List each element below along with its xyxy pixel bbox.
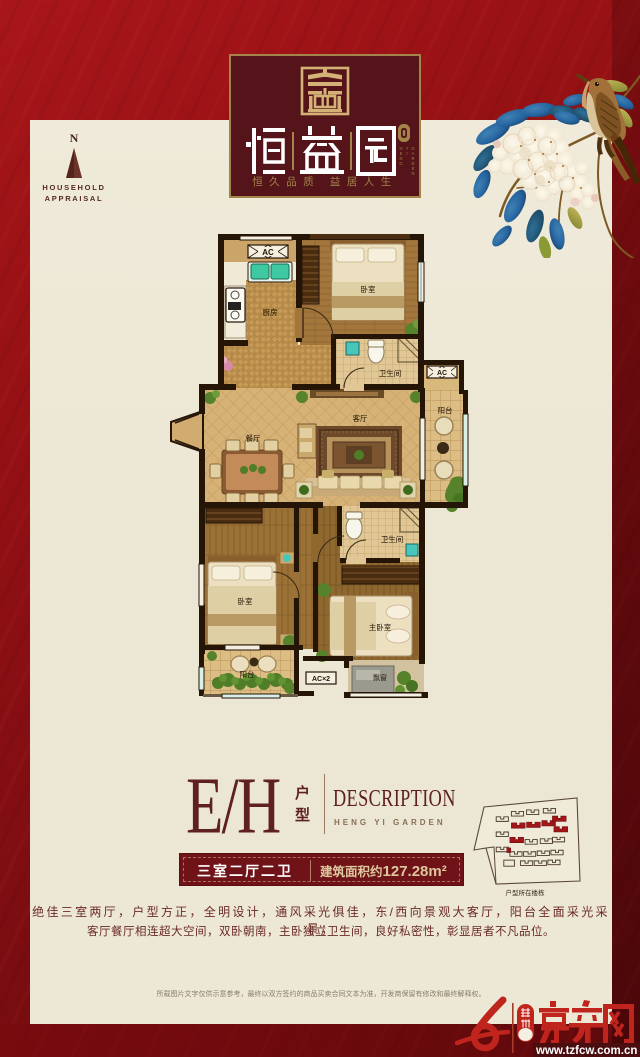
svg-text:AC: AC (437, 370, 447, 377)
svg-text:G: G (399, 161, 402, 166)
svg-text:客厅: 客厅 (353, 413, 368, 423)
svg-text:户型所在楼栋: 户型所在楼栋 (506, 888, 546, 897)
svg-text:阳台: 阳台 (240, 669, 255, 679)
svg-text:AC: AC (262, 248, 274, 257)
svg-text:餐厅: 餐厅 (246, 434, 261, 443)
svg-text:N: N (411, 171, 414, 176)
svg-text:I: I (406, 151, 407, 156)
svg-text:www.tzfcw.com.cn: www.tzfcw.com.cn (535, 1045, 637, 1057)
svg-text:飘窗: 飘窗 (373, 673, 387, 682)
svg-text:卫生间: 卫生间 (381, 534, 404, 544)
svg-text:AC×2: AC×2 (312, 676, 330, 683)
svg-text:卫生间: 卫生间 (379, 368, 402, 378)
svg-text:主卧室: 主卧室 (369, 622, 392, 632)
svg-text:HOUSEHOLD: HOUSEHOLD (42, 183, 105, 192)
svg-text:恒久品质 益居人生: 恒久品质 益居人生 (252, 175, 397, 188)
svg-text:N: N (70, 131, 79, 145)
svg-text:阳台: 阳台 (438, 405, 453, 415)
svg-text:APPRAISAL: APPRAISAL (45, 194, 104, 203)
svg-text:卧室: 卧室 (361, 284, 376, 294)
svg-text:卧室: 卧室 (238, 596, 253, 606)
svg-text:厨房: 厨房 (263, 307, 278, 317)
